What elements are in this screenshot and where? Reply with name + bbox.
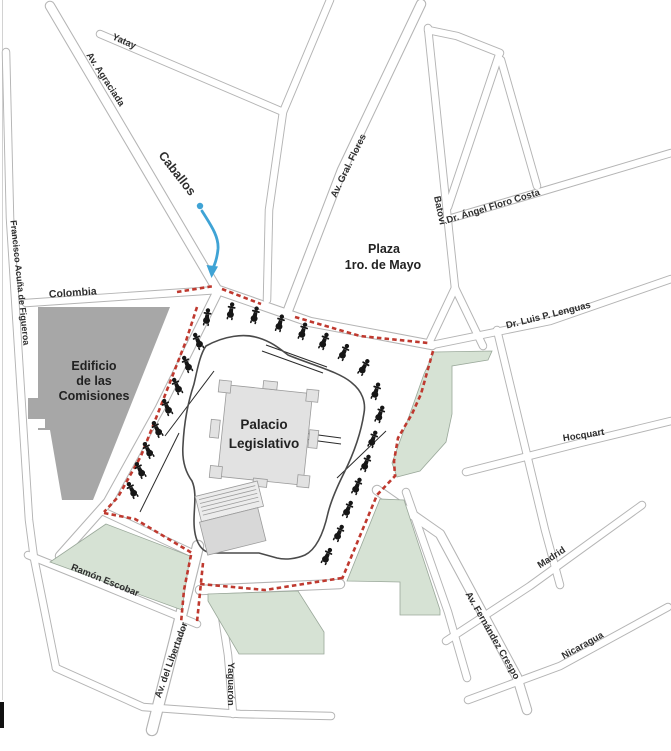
mounted-guard-icon — [337, 342, 352, 361]
green-area-east — [392, 351, 492, 477]
street-label-yatay: Yatay — [110, 32, 138, 52]
mounted-guard-icon — [226, 302, 237, 321]
street-label-yaguaron: Yaguarón — [225, 662, 236, 705]
area-label-palacio-legislativo-line2: Legislativo — [229, 436, 300, 451]
mounted-guard-icon — [332, 523, 347, 542]
street-label-lenguas: Dr. Luis P. Lenguas — [505, 300, 592, 332]
mounted-guard-icon — [320, 546, 335, 565]
edificio-comisiones-building — [28, 307, 170, 500]
area-label-edificio-comisiones-line1: Edificio — [71, 359, 117, 373]
map-canvas: YatayAv. AgraciadaCaballosAv. Gral. Flor… — [0, 0, 671, 751]
mounted-guard-icon — [350, 476, 364, 495]
area-label-plaza-1ro-de-mayo-line2: 1ro. de Mayo — [345, 258, 422, 272]
mounted-guard-icon — [356, 357, 372, 376]
palacio-legislativo-building — [205, 376, 323, 493]
mounted-guard-icon — [124, 480, 139, 499]
mounted-guard-icon — [359, 453, 373, 472]
street-label-fernandez-crespo: Av. Fernández Crespo — [463, 590, 522, 682]
map-labels-layer: YatayAv. AgraciadaCaballosAv. Gral. Flor… — [8, 32, 606, 706]
scan-artifact — [0, 702, 4, 728]
street-label-floro-costa: Dr. Ángel Floro Costa — [445, 187, 542, 226]
mounted-guard-icon — [317, 331, 331, 350]
mounted-guard-icon — [341, 499, 356, 518]
area-label-edificio-comisiones-line2: de las — [76, 374, 111, 388]
mounted-guard-icon — [373, 404, 387, 423]
area-label-palacio-legislativo-line1: Palacio — [240, 417, 287, 432]
street-label-gral-flores: Av. Gral. Flores — [329, 132, 369, 199]
area-label-plaza-1ro-de-mayo-line1: Plaza — [368, 242, 401, 256]
area-label-edificio-comisiones-line3: Comisiones — [59, 389, 130, 403]
palacio-legislativo-map: YatayAv. AgraciadaCaballosAv. Gral. Flor… — [0, 0, 671, 751]
annex-building — [193, 481, 272, 555]
route-start-dot — [197, 203, 203, 209]
mounted-guard-icon — [369, 381, 382, 400]
